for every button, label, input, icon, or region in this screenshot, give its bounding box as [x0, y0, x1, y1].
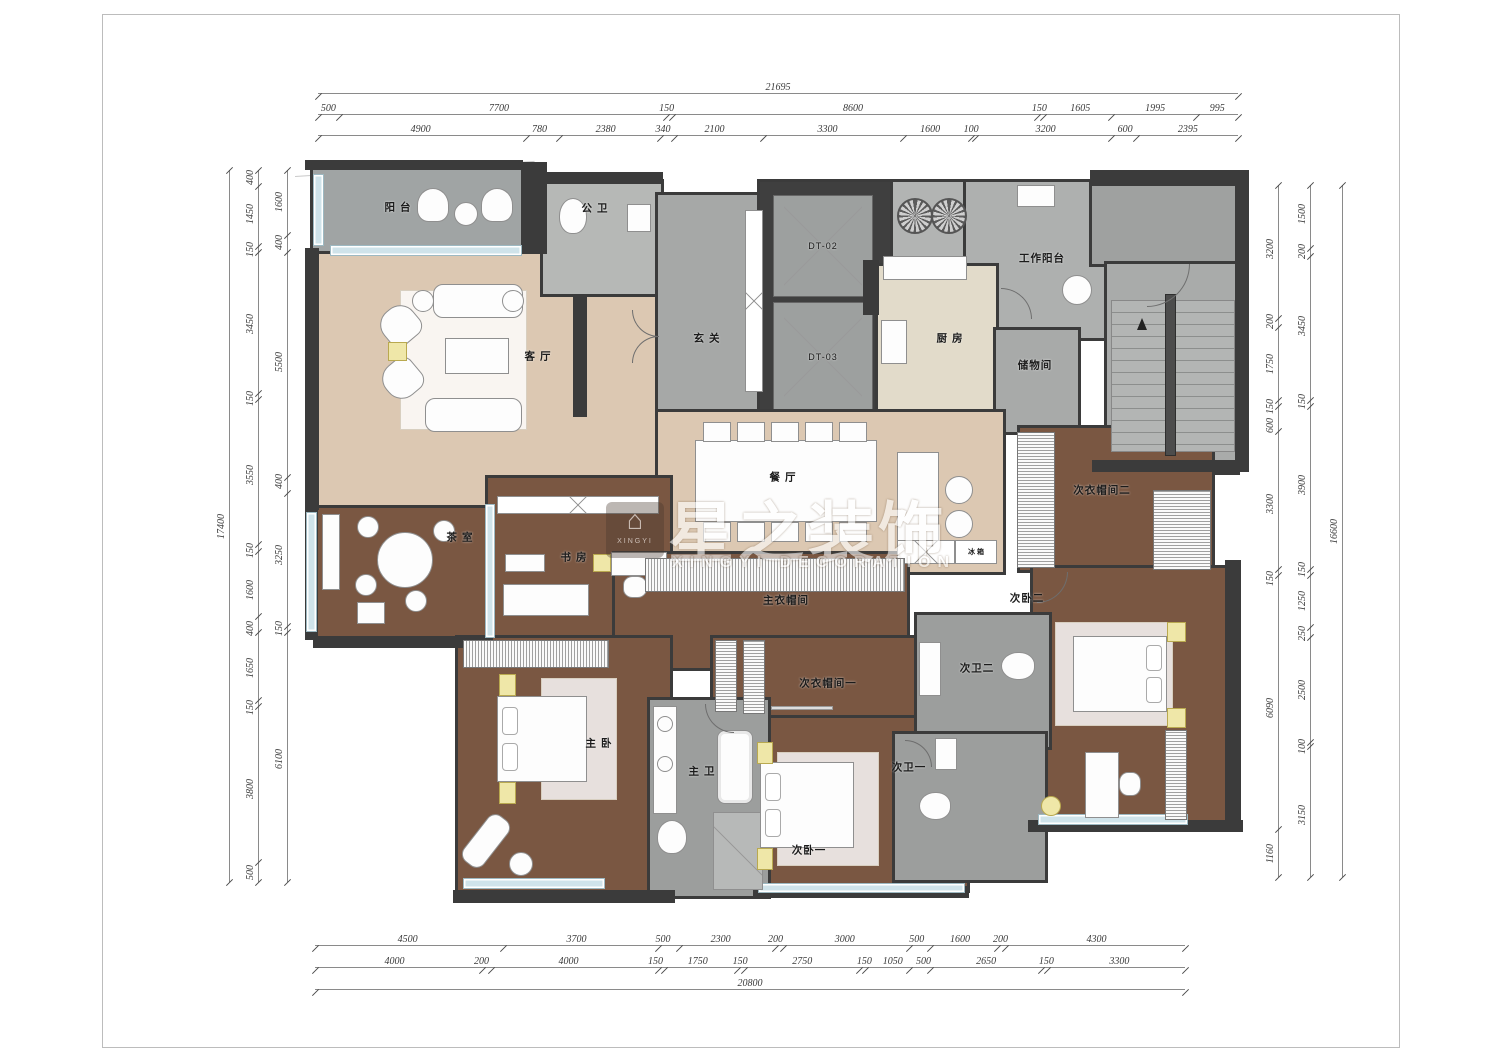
- dim-bottom-row2: 4000200400015017501502750150105050026501…: [315, 952, 1185, 968]
- dim-segment: 2100: [670, 120, 758, 135]
- dim-segment: 150: [1039, 952, 1054, 967]
- label-closet1: 次衣帽间一: [799, 676, 857, 691]
- study-cabinet: [497, 496, 659, 514]
- label-bath1: 次卫一: [892, 760, 927, 775]
- dim-segment: 3200: [979, 120, 1113, 135]
- basin-icon: [657, 756, 673, 772]
- dim-segment: 16600: [1327, 185, 1342, 877]
- dim-right-inner: 32002001750150600330015060901160: [1263, 185, 1279, 877]
- dim-value: 150: [1297, 562, 1308, 577]
- toilet-icon: [657, 820, 687, 854]
- dim-value: 340: [655, 124, 670, 135]
- desk-chair: [1119, 772, 1141, 796]
- ottoman: [509, 852, 533, 876]
- label-tea: 茶 室: [447, 530, 474, 545]
- dim-value: 500: [245, 865, 256, 880]
- lamp: [1041, 796, 1061, 816]
- dim-value: 600: [1118, 124, 1133, 135]
- window: [485, 504, 495, 638]
- label-public-bath: 公 卫: [582, 201, 609, 216]
- dim-value: 3250: [274, 545, 285, 565]
- fridge: 冰 箱: [955, 540, 997, 564]
- dim-value: 3900: [1297, 475, 1308, 495]
- wall: [453, 890, 675, 903]
- dim-segment: 1600: [897, 120, 964, 135]
- floorplan: DT-02 DT-03: [305, 160, 1245, 908]
- label-balcony: 阳 台: [385, 200, 412, 215]
- dim-segment: 1605: [1047, 99, 1114, 114]
- dim-value: 500: [916, 956, 931, 967]
- dim-value: 3700: [566, 934, 586, 945]
- wardrobe-hatch: [743, 640, 765, 714]
- dim-segment: 1250: [1295, 577, 1310, 626]
- dim-segment: 1600: [272, 170, 287, 235]
- wall: [305, 160, 523, 170]
- dim-segment: 1500: [1295, 185, 1310, 244]
- dim-value: 150: [245, 391, 256, 406]
- bed: [497, 696, 587, 782]
- dim-value: 150: [1039, 956, 1054, 967]
- pillow: [502, 743, 518, 771]
- dim-value: 1600: [920, 124, 940, 135]
- shower: [713, 812, 763, 890]
- dim-value: 150: [1265, 399, 1276, 414]
- elevator-1-label: DT-02: [808, 241, 838, 251]
- label-kitchen: 厨 房: [937, 331, 964, 346]
- dim-value: 1750: [1265, 354, 1276, 374]
- dim-value: 7700: [489, 103, 509, 114]
- dim-segment: 150: [733, 952, 748, 967]
- wardrobe-hatch: [1017, 432, 1055, 568]
- dim-segment: 3250: [272, 489, 287, 620]
- elevator-car-2: DT-03: [773, 302, 873, 412]
- sofa: [425, 398, 522, 432]
- dim-segment: 780: [523, 120, 556, 135]
- stair-landing: [1092, 184, 1240, 264]
- dim-value: 17400: [216, 514, 227, 539]
- dim-value: 3550: [245, 465, 256, 485]
- dim-value: 8600: [843, 103, 863, 114]
- label-foyer: 玄 关: [694, 331, 721, 346]
- pillow: [765, 809, 781, 837]
- dim-segment: 3900: [1295, 409, 1310, 562]
- long-table: [503, 584, 589, 616]
- dim-value: 3000: [835, 934, 855, 945]
- wall: [1092, 460, 1240, 472]
- dim-value: 2300: [711, 934, 731, 945]
- bar-stool: [945, 476, 973, 504]
- dim-value: 1050: [883, 956, 903, 967]
- dim-segment: 1750: [1263, 329, 1278, 399]
- dim-right-outer: 16600: [1327, 185, 1343, 877]
- dim-value: 600: [1265, 418, 1276, 433]
- dim-value: 150: [659, 103, 674, 114]
- wall: [863, 260, 879, 315]
- dim-value: 2395: [1178, 124, 1198, 135]
- dim-value: 4500: [398, 934, 418, 945]
- dim-segment: 2380: [556, 120, 656, 135]
- dim-segment: 1600: [927, 930, 993, 945]
- window: [330, 245, 522, 256]
- nightstand: [499, 782, 516, 804]
- dim-segment: 2395: [1138, 120, 1238, 135]
- side-table: [412, 290, 434, 312]
- dim-value: 400: [274, 474, 285, 489]
- dim-segment: 3450: [243, 257, 258, 391]
- dim-segment: 995: [1197, 99, 1238, 114]
- dim-segment: 100: [1295, 739, 1310, 754]
- nightstand: [757, 848, 773, 870]
- dim-segment: 1995: [1114, 99, 1197, 114]
- dim-segment: 1600: [243, 558, 258, 620]
- dim-segment: 500: [914, 952, 934, 967]
- dim-value: 1450: [245, 204, 256, 224]
- tea-stool: [357, 516, 379, 538]
- dim-segment: 4500: [315, 930, 500, 945]
- bathtub: [717, 730, 753, 804]
- dim-segment: 5500: [272, 251, 287, 473]
- fan-icon: [931, 198, 967, 234]
- dim-top-row3: 4900780238034021003300160010032006002395: [318, 120, 1238, 136]
- dim-value: 2500: [1297, 680, 1308, 700]
- pillow: [1146, 677, 1162, 703]
- dim-left-inner: 1600400550040032501506100: [272, 170, 288, 882]
- dim-value: 3450: [245, 314, 256, 334]
- washer-icon: [1062, 275, 1092, 305]
- dim-segment: 2750: [748, 952, 857, 967]
- dim-segment: 6100: [272, 636, 287, 882]
- dim-segment: 4000: [315, 952, 474, 967]
- room-public-bath: [543, 182, 661, 294]
- dim-value: 16600: [1329, 519, 1340, 544]
- bed: [760, 762, 854, 848]
- dim-value: 200: [768, 934, 783, 945]
- dim-segment: 150: [659, 99, 674, 114]
- dim-segment: 7700: [339, 99, 659, 114]
- window: [313, 174, 324, 246]
- dim-top-total: 21695: [318, 78, 1238, 94]
- counter-cabinet: [897, 540, 955, 564]
- dim-bottom-row1: 450037005002300200300050016002004300: [315, 930, 1185, 946]
- dim-value: 100: [1297, 739, 1308, 754]
- dim-value: 100: [964, 124, 979, 135]
- elevator-car-1: DT-02: [773, 195, 873, 297]
- wall: [543, 172, 663, 184]
- fridge-label: 冰 箱: [968, 547, 984, 557]
- dim-value: 400: [245, 621, 256, 636]
- pillow: [765, 773, 781, 801]
- label-bedroom1: 次卧一: [792, 843, 827, 858]
- dim-segment: 6090: [1263, 586, 1278, 831]
- dining-chair: [703, 422, 731, 442]
- dim-segment: 3800: [243, 715, 258, 862]
- dim-segment: 500: [906, 930, 927, 945]
- nightstand: [1167, 622, 1186, 642]
- dim-top-row2: 5007700150860015016051995995: [318, 99, 1238, 115]
- dim-segment: 200: [768, 930, 783, 945]
- dim-value: 3200: [1036, 124, 1056, 135]
- dim-value: 150: [1297, 394, 1308, 409]
- dim-segment: 20800: [315, 974, 1185, 989]
- wardrobe-hatch: [645, 558, 905, 592]
- dim-segment: 200: [993, 930, 1008, 945]
- dim-value: 3150: [1297, 805, 1308, 825]
- dim-value: 1160: [1265, 844, 1276, 863]
- dining-chair: [771, 422, 799, 442]
- dining-chair: [703, 522, 731, 542]
- dim-segment: 2300: [673, 930, 768, 945]
- label-study: 书 房: [561, 550, 588, 565]
- laundry-sink: [1017, 185, 1055, 207]
- dim-value: 2750: [792, 956, 812, 967]
- desk: [1085, 752, 1119, 818]
- stair-rail: [1165, 294, 1176, 456]
- dim-value: 200: [474, 956, 489, 967]
- dim-segment: 150: [648, 952, 663, 967]
- floorplan-sheet: DT-02 DT-03: [0, 0, 1500, 1061]
- dim-segment: 1450: [243, 186, 258, 242]
- wall: [1235, 170, 1249, 472]
- wardrobe-hatch: [715, 640, 737, 712]
- tea-stool: [355, 574, 377, 596]
- coffee-table: [445, 338, 509, 374]
- side-table: [502, 290, 524, 312]
- dim-value: 200: [993, 934, 1008, 945]
- fan-icon: [897, 198, 933, 234]
- wardrobe-hatch: [1165, 730, 1187, 820]
- tea-tray: [505, 554, 545, 572]
- dim-value: 1250: [1297, 591, 1308, 611]
- dining-chair: [805, 422, 833, 442]
- nightstand: [1167, 708, 1186, 728]
- elevator-2-label: DT-03: [808, 352, 838, 362]
- dim-value: 6090: [1265, 698, 1276, 718]
- dim-value: 1600: [245, 580, 256, 600]
- dim-value: 995: [1210, 103, 1225, 114]
- dim-value: 500: [655, 934, 670, 945]
- stair-arrow-icon: [1137, 318, 1147, 330]
- label-storage: 储物间: [1018, 358, 1053, 373]
- wardrobe-hatch: [463, 640, 609, 668]
- window: [758, 883, 965, 893]
- dim-segment: 1650: [243, 636, 258, 700]
- dim-value: 150: [245, 543, 256, 558]
- dim-value: 1600: [274, 192, 285, 212]
- dim-value: 3200: [1265, 239, 1276, 259]
- balcony-table: [454, 202, 478, 226]
- floor-lamp: [388, 342, 407, 361]
- label-bedroom2: 次卧二: [1010, 591, 1045, 606]
- dim-value: 150: [857, 956, 872, 967]
- balcony-chair: [417, 188, 449, 222]
- dim-value: 4000: [385, 956, 405, 967]
- dim-segment: 200: [474, 952, 489, 967]
- island-counter: [897, 452, 939, 544]
- dim-segment: 3150: [1295, 754, 1310, 877]
- bar-stool: [945, 510, 973, 538]
- dim-segment: 1160: [1263, 830, 1278, 877]
- label-master-bedroom: 主 卧: [586, 736, 613, 751]
- dim-segment: 4000: [489, 952, 648, 967]
- kitchen-sink-counter: [883, 256, 967, 280]
- dim-segment: 500: [318, 99, 339, 114]
- dim-value: 5500: [274, 352, 285, 372]
- dim-value: 3300: [1265, 494, 1276, 514]
- dim-segment: 500: [653, 930, 674, 945]
- dim-value: 1500: [1297, 204, 1308, 224]
- vanity: [935, 738, 957, 770]
- dim-segment: 3200: [1263, 185, 1278, 314]
- dim-segment: 4900: [318, 120, 523, 135]
- dim-value: 150: [648, 956, 663, 967]
- dim-segment: 3550: [243, 406, 258, 544]
- toilet-icon: [919, 792, 951, 820]
- dim-value: 2380: [596, 124, 616, 135]
- clothes-rail: [771, 706, 833, 710]
- label-dining: 餐 厅: [770, 470, 797, 485]
- dim-segment: 8600: [674, 99, 1032, 114]
- dim-value: 1750: [688, 956, 708, 967]
- dim-value: 1650: [245, 658, 256, 678]
- dim-segment: 21695: [318, 78, 1238, 93]
- vanity: [919, 642, 941, 696]
- dim-value: 6100: [274, 749, 285, 769]
- label-master-bath: 主 卫: [689, 764, 716, 779]
- dim-segment: 150: [1032, 99, 1047, 114]
- tea-sink: [357, 602, 385, 624]
- dim-value: 3800: [245, 779, 256, 799]
- dim-value: 3300: [818, 124, 838, 135]
- dim-segment: 3300: [1263, 438, 1278, 571]
- dim-segment: 1750: [663, 952, 733, 967]
- dim-value: 4300: [1086, 934, 1106, 945]
- dim-value: 21695: [766, 82, 791, 93]
- basin-icon: [657, 716, 673, 732]
- dim-value: 2650: [976, 956, 996, 967]
- dim-segment: 3300: [758, 120, 896, 135]
- dim-value: 150: [1032, 103, 1047, 114]
- dim-segment: 4300: [1008, 930, 1185, 945]
- dim-segment: 3700: [500, 930, 652, 945]
- dim-segment: 340: [655, 120, 670, 135]
- dim-segment: 100: [964, 120, 979, 135]
- nightstand: [757, 742, 773, 764]
- toilet-icon: [1001, 652, 1035, 680]
- dim-segment: 1050: [872, 952, 914, 967]
- balcony-chair: [481, 188, 513, 222]
- dim-right-mid: 150020034501503900150125025025001003150: [1295, 185, 1311, 877]
- dim-value: 4900: [411, 124, 431, 135]
- label-master-closet: 主衣帽间: [763, 593, 809, 608]
- bed: [1073, 636, 1167, 712]
- dim-segment: 2650: [933, 952, 1038, 967]
- tea-table: [377, 532, 433, 588]
- dim-value: 1995: [1145, 103, 1165, 114]
- dining-chair: [805, 522, 833, 542]
- wall: [1090, 170, 1240, 186]
- wardrobe-hatch: [1153, 490, 1211, 570]
- tea-cabinet: [322, 514, 340, 590]
- dim-segment: 150: [243, 391, 258, 406]
- dim-value: 780: [532, 124, 547, 135]
- pillow: [502, 707, 518, 735]
- pillow: [1146, 645, 1162, 671]
- dining-chair: [771, 522, 799, 542]
- dim-segment: 3450: [1295, 259, 1310, 394]
- dining-chair: [839, 422, 867, 442]
- dim-value: 500: [321, 103, 336, 114]
- dim-value: 4000: [559, 956, 579, 967]
- label-work-balcony: 工作阳台: [1019, 251, 1065, 266]
- dim-left-outer: 17400: [214, 170, 230, 882]
- sink-icon: [627, 204, 651, 232]
- dim-value: 150: [733, 956, 748, 967]
- dim-segment: 3300: [1054, 952, 1185, 967]
- dim-segment: 2500: [1295, 641, 1310, 739]
- dim-segment: 150: [857, 952, 872, 967]
- dim-value: 1600: [950, 934, 970, 945]
- dim-value: 500: [909, 934, 924, 945]
- dim-value: 2100: [704, 124, 724, 135]
- dim-segment: 3000: [783, 930, 907, 945]
- window: [306, 512, 317, 632]
- dim-segment: 17400: [214, 170, 229, 882]
- dim-value: 20800: [738, 978, 763, 989]
- tea-stool: [405, 590, 427, 612]
- dim-segment: 400: [272, 473, 287, 489]
- foyer-cabinet: [745, 210, 763, 392]
- dining-chair: [737, 522, 765, 542]
- stove-icon: [881, 320, 907, 364]
- dim-segment: 600: [1113, 120, 1138, 135]
- tv-wall: [573, 297, 587, 417]
- dining-chair: [737, 422, 765, 442]
- dim-value: 3450: [1297, 316, 1308, 336]
- dim-value: 3300: [1109, 956, 1129, 967]
- label-bath2: 次卫二: [960, 661, 995, 676]
- label-living: 客 厅: [525, 349, 552, 364]
- dim-bottom-total: 20800: [315, 974, 1185, 990]
- dim-value: 250: [1297, 626, 1308, 641]
- window: [463, 878, 605, 889]
- lamp: [593, 554, 611, 572]
- dining-chair: [839, 522, 867, 542]
- desk-chair: [623, 576, 647, 598]
- dim-left-mid: 4001450150345015035501501600400165015038…: [243, 170, 259, 882]
- room-storage: [996, 330, 1078, 432]
- label-closet2: 次衣帽间二: [1073, 483, 1131, 498]
- dim-value: 1605: [1070, 103, 1090, 114]
- wall: [1225, 560, 1241, 826]
- dim-segment: 150: [1295, 562, 1310, 577]
- nightstand: [499, 674, 516, 696]
- wall: [305, 248, 319, 510]
